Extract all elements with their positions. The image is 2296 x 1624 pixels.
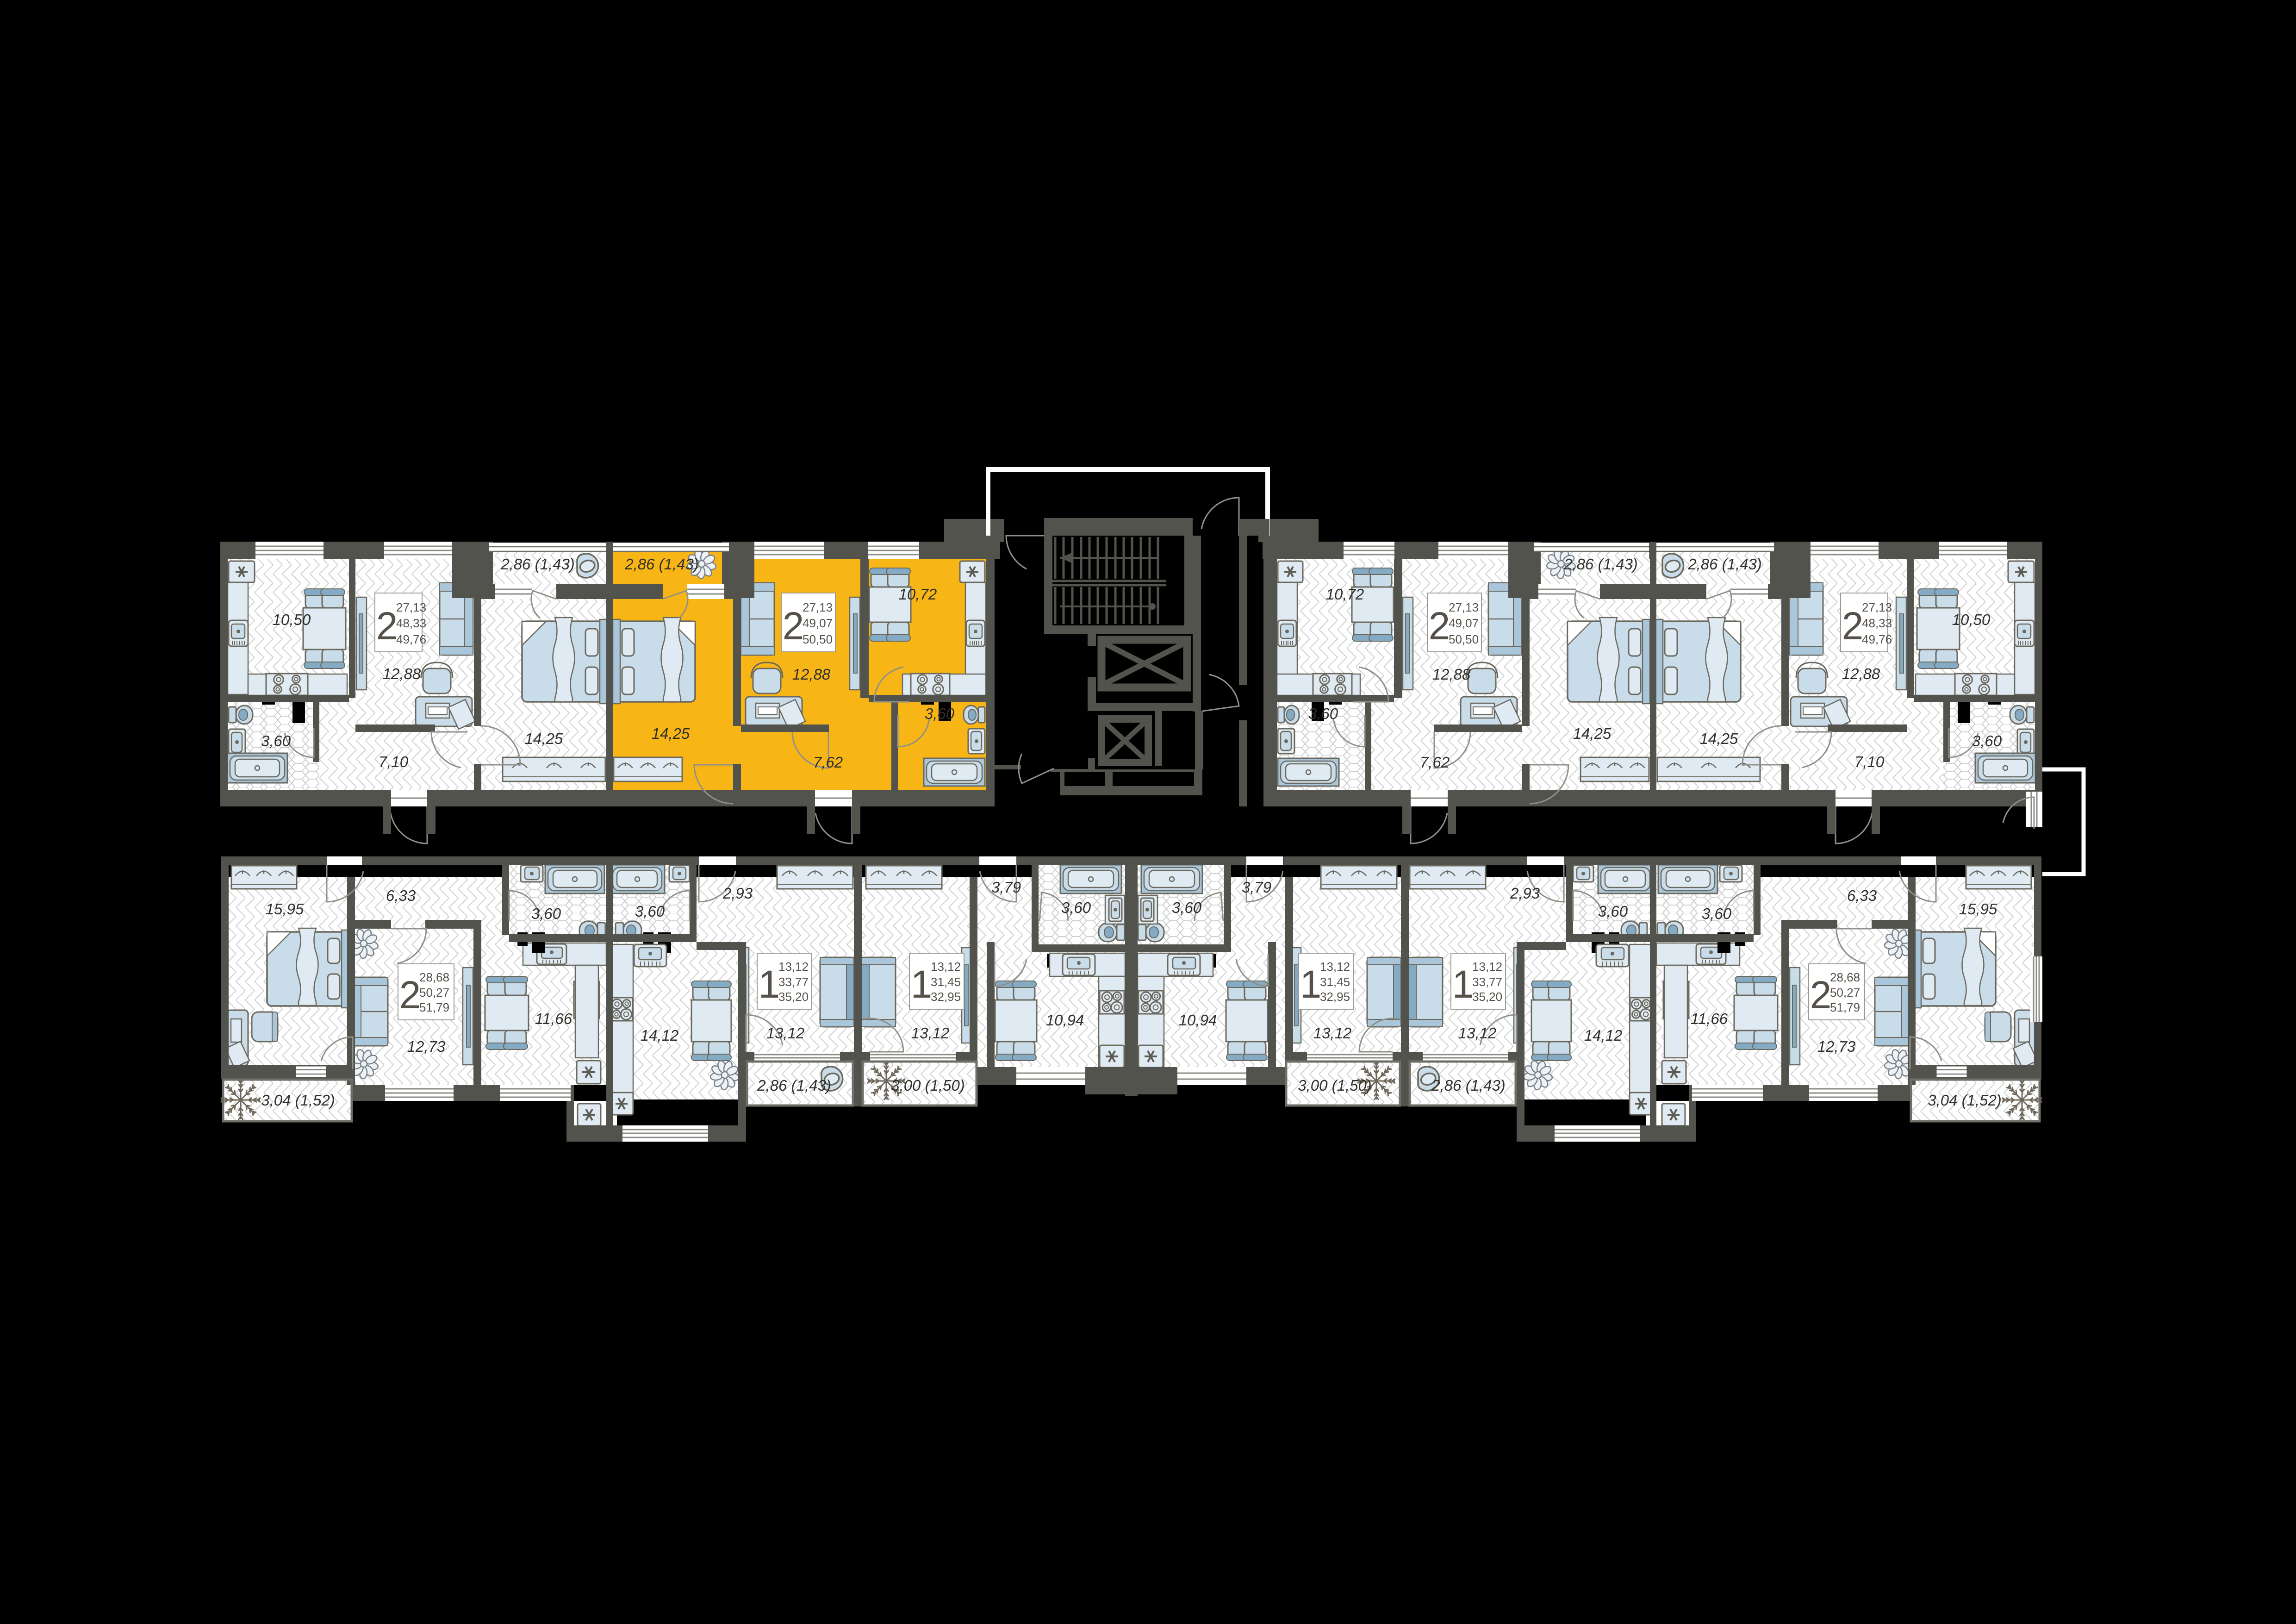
- svg-text:13,12: 13,12: [931, 960, 961, 974]
- svg-text:13,12: 13,12: [1458, 1024, 1497, 1042]
- svg-text:2: 2: [1810, 973, 1832, 1017]
- svg-text:2: 2: [1429, 604, 1450, 648]
- svg-text:49,07: 49,07: [1449, 616, 1479, 630]
- svg-text:33,77: 33,77: [778, 975, 809, 989]
- svg-text:12,73: 12,73: [407, 1038, 446, 1055]
- svg-text:1: 1: [759, 962, 780, 1006]
- svg-text:3,79: 3,79: [1242, 879, 1271, 896]
- svg-text:49,76: 49,76: [396, 632, 426, 646]
- svg-text:15,95: 15,95: [1959, 900, 1997, 918]
- svg-text:10,94: 10,94: [1179, 1012, 1217, 1029]
- svg-text:12,88: 12,88: [383, 665, 421, 682]
- svg-text:2,86 (1,43): 2,86 (1,43): [500, 556, 575, 573]
- svg-text:50,27: 50,27: [1830, 986, 1860, 999]
- svg-text:3,79: 3,79: [991, 879, 1021, 896]
- svg-text:7,10: 7,10: [379, 753, 409, 770]
- svg-text:50,50: 50,50: [1449, 632, 1479, 646]
- svg-text:2: 2: [1842, 604, 1864, 648]
- svg-text:50,27: 50,27: [419, 986, 449, 999]
- svg-text:14,25: 14,25: [525, 730, 563, 747]
- svg-text:1: 1: [1452, 962, 1474, 1006]
- svg-text:3,04 (1,52): 3,04 (1,52): [261, 1092, 335, 1109]
- svg-text:12,88: 12,88: [792, 666, 831, 683]
- svg-text:51,79: 51,79: [419, 1000, 449, 1014]
- svg-text:14,25: 14,25: [652, 725, 690, 742]
- svg-text:1: 1: [1300, 962, 1322, 1006]
- svg-text:35,20: 35,20: [1472, 990, 1502, 1004]
- svg-text:10,50: 10,50: [1952, 611, 1991, 628]
- svg-text:12,88: 12,88: [1432, 666, 1471, 683]
- svg-text:32,95: 32,95: [1320, 990, 1350, 1004]
- svg-text:14,25: 14,25: [1573, 725, 1612, 742]
- svg-text:14,12: 14,12: [641, 1027, 679, 1044]
- svg-text:3,60: 3,60: [925, 705, 955, 722]
- svg-text:48,33: 48,33: [1862, 616, 1892, 630]
- svg-text:3,60: 3,60: [531, 905, 561, 922]
- svg-text:2,86 (1,43): 2,86 (1,43): [1687, 556, 1762, 573]
- svg-text:2,86 (1,43): 2,86 (1,43): [1431, 1077, 1506, 1094]
- svg-text:2,86 (1,43): 2,86 (1,43): [624, 556, 699, 573]
- svg-text:3,60: 3,60: [635, 903, 665, 920]
- svg-text:14,12: 14,12: [1584, 1027, 1623, 1044]
- svg-text:15,95: 15,95: [266, 900, 304, 918]
- svg-text:13,12: 13,12: [911, 1024, 950, 1042]
- svg-text:7,62: 7,62: [813, 754, 843, 771]
- svg-text:10,72: 10,72: [899, 586, 937, 603]
- svg-text:1: 1: [911, 962, 933, 1006]
- svg-text:6,33: 6,33: [1847, 887, 1877, 904]
- svg-text:35,20: 35,20: [778, 990, 809, 1004]
- svg-text:2,93: 2,93: [722, 885, 753, 902]
- svg-text:49,07: 49,07: [803, 616, 833, 630]
- svg-text:2,86 (1,43): 2,86 (1,43): [757, 1077, 831, 1094]
- svg-text:13,12: 13,12: [1320, 960, 1350, 974]
- svg-text:7,10: 7,10: [1854, 753, 1885, 770]
- svg-text:2,93: 2,93: [1510, 885, 1540, 902]
- svg-text:2,86 (1,43): 2,86 (1,43): [1563, 556, 1638, 573]
- svg-text:10,94: 10,94: [1046, 1012, 1084, 1029]
- svg-text:3,00 (1,50): 3,00 (1,50): [1298, 1077, 1372, 1094]
- svg-text:13,12: 13,12: [1472, 960, 1502, 974]
- svg-text:51,79: 51,79: [1830, 1000, 1860, 1014]
- svg-text:10,50: 10,50: [273, 611, 311, 628]
- svg-text:12,73: 12,73: [1817, 1038, 1856, 1055]
- svg-text:33,77: 33,77: [1472, 975, 1502, 989]
- svg-text:31,45: 31,45: [1320, 975, 1350, 989]
- svg-text:3,60: 3,60: [1172, 899, 1202, 916]
- svg-text:14,25: 14,25: [1700, 730, 1738, 747]
- svg-text:3,60: 3,60: [1308, 705, 1338, 722]
- svg-text:3,60: 3,60: [1702, 905, 1732, 922]
- svg-text:48,33: 48,33: [396, 616, 426, 630]
- svg-text:13,12: 13,12: [1313, 1024, 1352, 1042]
- svg-text:13,12: 13,12: [766, 1024, 805, 1042]
- svg-text:3,60: 3,60: [1061, 899, 1091, 916]
- svg-text:31,45: 31,45: [931, 975, 961, 989]
- svg-text:28,68: 28,68: [419, 970, 449, 984]
- svg-text:27,13: 27,13: [803, 600, 833, 614]
- svg-text:3,60: 3,60: [261, 732, 291, 750]
- svg-text:50,50: 50,50: [803, 632, 833, 646]
- svg-text:3,60: 3,60: [1972, 732, 2002, 750]
- svg-text:27,13: 27,13: [1449, 600, 1479, 614]
- svg-text:32,95: 32,95: [931, 990, 961, 1004]
- svg-text:49,76: 49,76: [1862, 632, 1892, 646]
- svg-text:6,33: 6,33: [386, 887, 416, 904]
- svg-text:2: 2: [783, 604, 804, 648]
- svg-text:27,13: 27,13: [396, 600, 426, 614]
- svg-text:27,13: 27,13: [1862, 600, 1892, 614]
- svg-text:12,88: 12,88: [1842, 665, 1880, 682]
- svg-text:2: 2: [399, 973, 421, 1017]
- svg-text:11,66: 11,66: [1691, 1010, 1728, 1027]
- svg-text:13,12: 13,12: [778, 960, 809, 974]
- svg-text:7,62: 7,62: [1420, 754, 1450, 771]
- svg-text:10,72: 10,72: [1326, 586, 1364, 603]
- svg-text:3,60: 3,60: [1598, 903, 1628, 920]
- svg-text:28,68: 28,68: [1830, 970, 1860, 984]
- svg-text:3,00 (1,50): 3,00 (1,50): [891, 1077, 965, 1094]
- svg-text:3,04 (1,52): 3,04 (1,52): [1928, 1092, 2002, 1109]
- svg-text:11,66: 11,66: [535, 1010, 572, 1027]
- svg-text:2: 2: [376, 604, 398, 648]
